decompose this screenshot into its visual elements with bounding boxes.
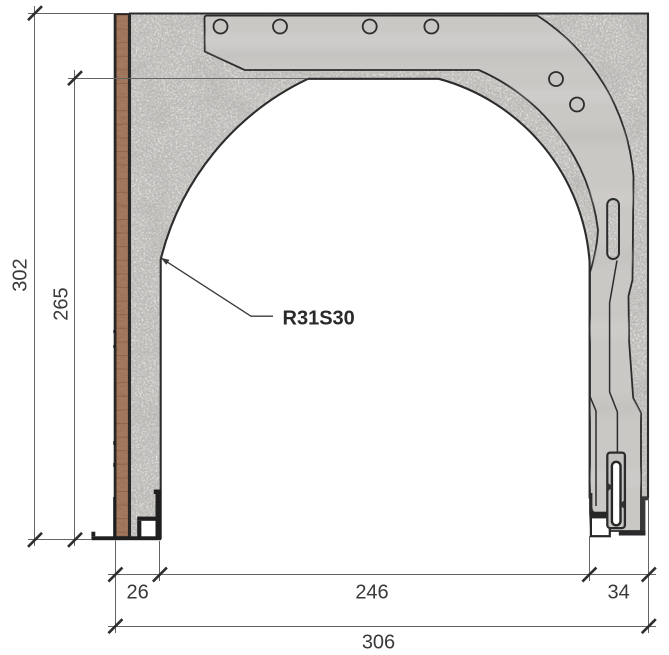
svg-text:26: 26 [126, 582, 148, 604]
svg-text:306: 306 [362, 631, 395, 653]
svg-text:302: 302 [10, 258, 32, 291]
svg-text:R31S30: R31S30 [283, 308, 355, 330]
svg-text:246: 246 [355, 582, 388, 604]
svg-text:265: 265 [51, 287, 73, 320]
svg-text:34: 34 [607, 582, 629, 604]
